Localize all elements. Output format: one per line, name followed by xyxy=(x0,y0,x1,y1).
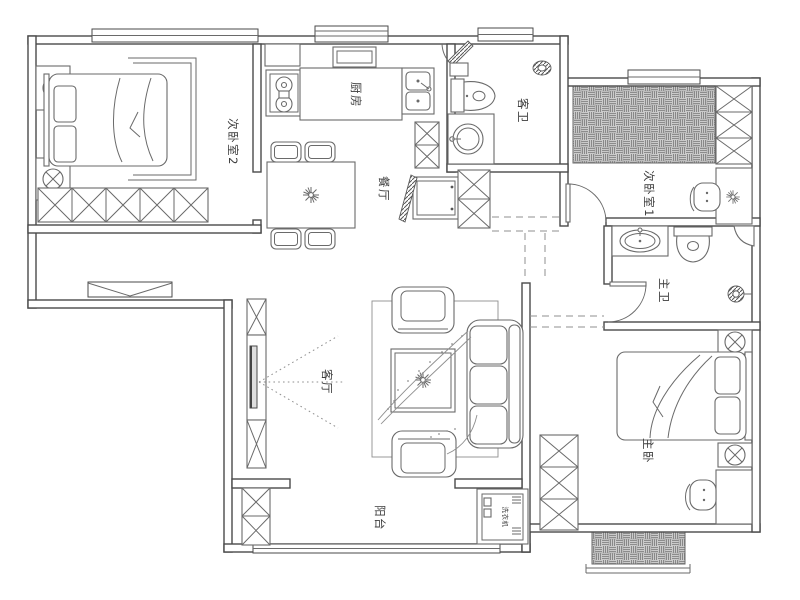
wardrobe-icon xyxy=(716,86,752,164)
wall-left-upper xyxy=(28,36,36,308)
wall-right xyxy=(752,78,760,532)
window-icon xyxy=(628,70,700,84)
pillow-icon xyxy=(54,86,76,122)
floor-plan-canvas: 次卧室2 厨房 xyxy=(0,0,800,600)
washing-machine-icon: 洗衣机 xyxy=(477,489,528,544)
tatami-platform-icon xyxy=(573,86,715,163)
armchair-icon xyxy=(392,431,456,477)
room-label-kitchen: 厨房 xyxy=(349,82,363,108)
room-label-master-bathroom: 主卫 xyxy=(657,278,671,304)
room-label-bedroom2: 次卧室2 xyxy=(226,118,240,166)
wall-balcony-stub-right xyxy=(455,479,522,488)
chair-icon xyxy=(305,142,335,162)
wall-bedroom2-right xyxy=(253,44,261,172)
washbasin-icon xyxy=(448,114,494,164)
shoe-cabinet-icon xyxy=(458,170,490,228)
window-icon xyxy=(315,26,388,42)
window-icon xyxy=(478,28,533,41)
counter-corner-icon xyxy=(265,44,300,66)
tall-cabinet-icon xyxy=(415,122,439,168)
kitchen-sink-icon xyxy=(402,68,434,114)
armchair-icon xyxy=(392,287,454,333)
wall-masterbath-left xyxy=(604,226,612,284)
pillow-icon xyxy=(715,397,740,434)
pillow-icon xyxy=(54,126,76,162)
balcony-cabinet-icon xyxy=(242,488,270,545)
bath-shelf-icon xyxy=(450,63,468,76)
wardrobe-icon xyxy=(38,188,208,222)
room-label-master-bedroom: 主卧 xyxy=(641,438,655,464)
window-icon xyxy=(92,29,258,42)
washbasin-icon xyxy=(612,226,668,256)
wall-masterbath-bottom xyxy=(604,322,760,330)
range-hood-icon xyxy=(333,47,376,67)
room-label-balcony: 阳台 xyxy=(373,505,387,531)
floor-plan-page: 次卧室2 厨房 xyxy=(0,0,800,600)
nightstand-lamp-icon xyxy=(725,445,745,465)
wall-bedroom2-bottom xyxy=(28,225,261,233)
room-label-bedroom1: 次卧室1 xyxy=(642,170,656,218)
tv-wall-cabinet-icon xyxy=(247,299,266,468)
headboard-icon xyxy=(44,74,49,166)
chair-icon xyxy=(271,229,301,249)
window-icon xyxy=(253,544,500,553)
wall-balcony-stub-left xyxy=(232,479,290,488)
chair-icon xyxy=(271,142,301,162)
room-label-guest-bathroom: 客卫 xyxy=(516,98,530,124)
desk-icon xyxy=(716,470,752,524)
room-label-living: 客厅 xyxy=(320,369,334,395)
floor-drain-icon xyxy=(533,61,551,75)
nightstand-lamp-icon xyxy=(43,169,63,189)
stove-icon xyxy=(266,70,302,116)
chair-icon xyxy=(305,229,335,249)
pillow-icon xyxy=(715,357,740,394)
entry-hall xyxy=(458,170,490,228)
wall-living-left xyxy=(224,300,232,552)
washing-machine-label: 洗衣机 xyxy=(501,507,510,528)
nightstand-lamp-icon xyxy=(725,332,745,352)
room-label-dining: 餐厅 xyxy=(377,176,391,202)
sofa-icon xyxy=(467,320,523,448)
wall-corridor-bottom xyxy=(28,300,232,308)
wardrobe-icon xyxy=(540,435,578,530)
bay-seat-icon xyxy=(88,282,172,297)
